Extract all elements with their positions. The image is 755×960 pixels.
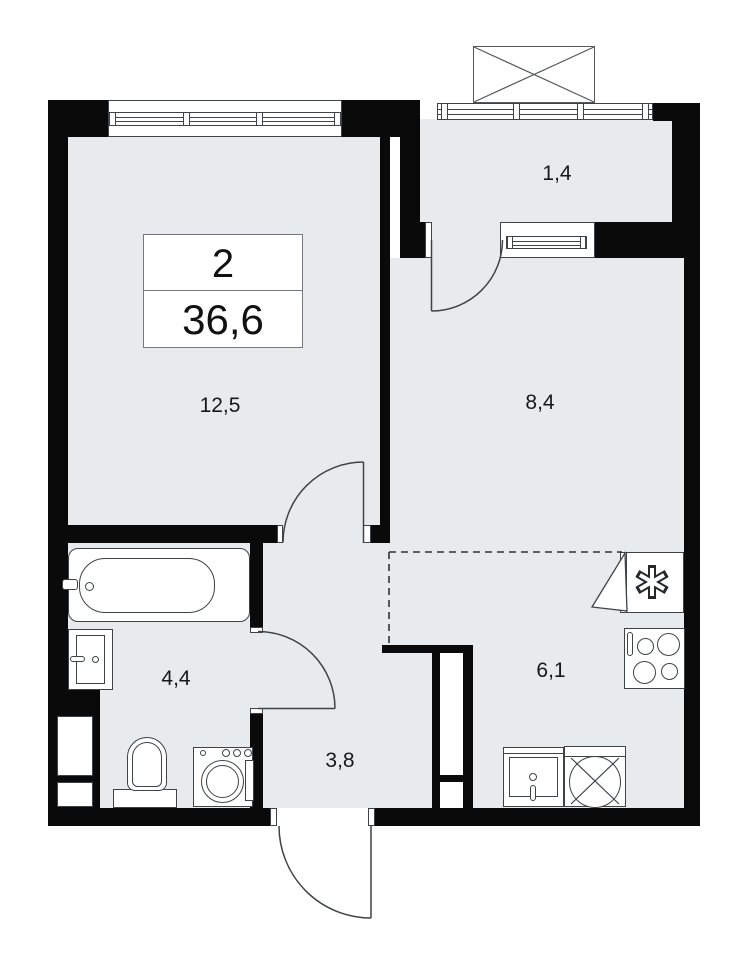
door-bathroom xyxy=(258,632,335,709)
room-label-bathroom: 4,4 xyxy=(126,667,226,691)
room-label-balcony: 1,4 xyxy=(507,162,607,186)
room-label-kitchen: 6,1 xyxy=(501,659,601,683)
room-label-room: 8,4 xyxy=(490,391,590,415)
fan-icon xyxy=(637,565,666,599)
room-label-living: 12,5 xyxy=(170,394,270,418)
door-balcony xyxy=(432,240,503,311)
room-label-hallway: 3,8 xyxy=(290,749,390,773)
appliance-cross xyxy=(571,758,619,804)
plan-linework xyxy=(0,0,755,960)
zone-dashed-line xyxy=(389,552,622,645)
door-entrance xyxy=(279,826,371,918)
door-living xyxy=(283,462,364,543)
counter-wedge xyxy=(592,553,627,611)
floor-plan: 2 36,6 xyxy=(0,0,755,960)
